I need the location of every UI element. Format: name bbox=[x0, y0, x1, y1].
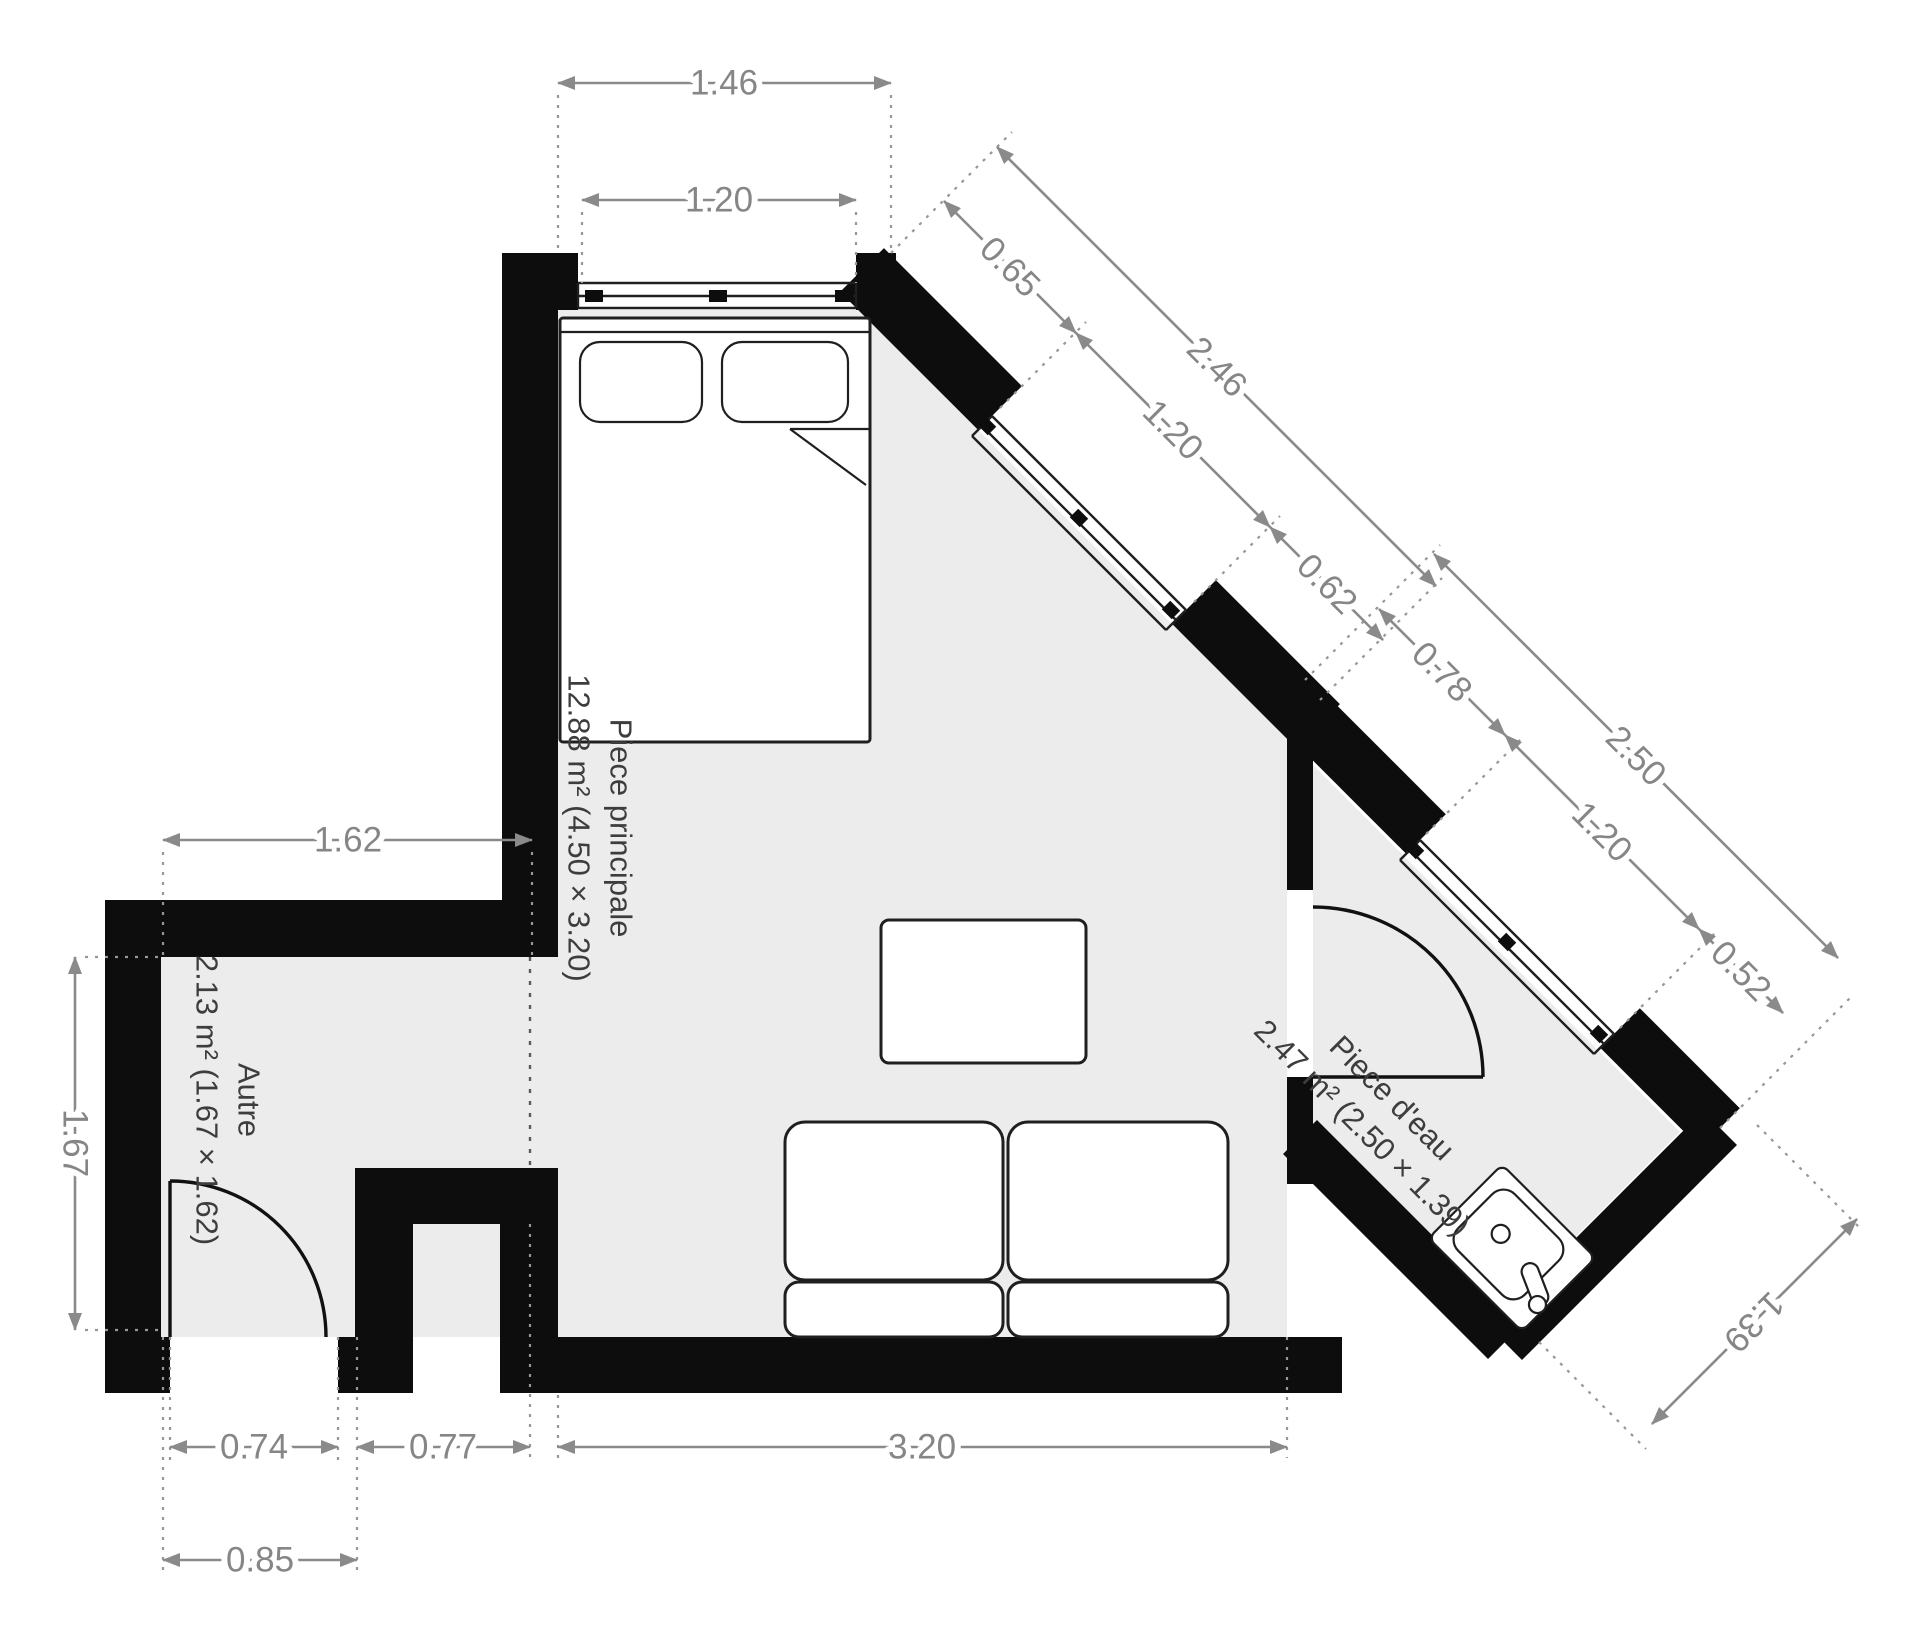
room-details: 2.13 m² (1.67 × 1.62) bbox=[190, 955, 225, 1245]
sofa-back-left bbox=[785, 1122, 1003, 1280]
dim-label-top-wall: 1.46 bbox=[690, 64, 758, 103]
dim-label-door-frame: 0.85 bbox=[226, 1541, 294, 1580]
dim-label-top-window: 1.20 bbox=[685, 181, 753, 220]
dim-label-autre-door: 0.74 bbox=[220, 1428, 288, 1467]
floorplan-canvas: 1.46 1.20 1.62 1.67 0.74 0.77 3.20 0.85 … bbox=[0, 0, 1920, 1642]
double-bed bbox=[560, 318, 870, 742]
dim-label-niche: 0.77 bbox=[409, 1428, 477, 1467]
coffee-table bbox=[881, 920, 1086, 1063]
sofa-back-right bbox=[1008, 1122, 1228, 1280]
room-details: 12.88 m² (4.50 × 3.20) bbox=[562, 674, 597, 982]
bed-pillow-right bbox=[722, 342, 848, 422]
dim-label-main-width: 3.20 bbox=[888, 1428, 956, 1467]
dim-label-autre-height: 1.67 bbox=[56, 1109, 95, 1177]
bed-pillow-left bbox=[580, 342, 702, 422]
window-top bbox=[578, 283, 856, 308]
sofa bbox=[785, 1122, 1228, 1337]
dim-label-autre-width: 1.62 bbox=[314, 821, 382, 860]
sofa-seat-right bbox=[1008, 1282, 1228, 1337]
room-name: Autre bbox=[232, 1063, 267, 1137]
room-name: Piece principale bbox=[604, 719, 639, 938]
sofa-seat-left bbox=[785, 1282, 1003, 1337]
